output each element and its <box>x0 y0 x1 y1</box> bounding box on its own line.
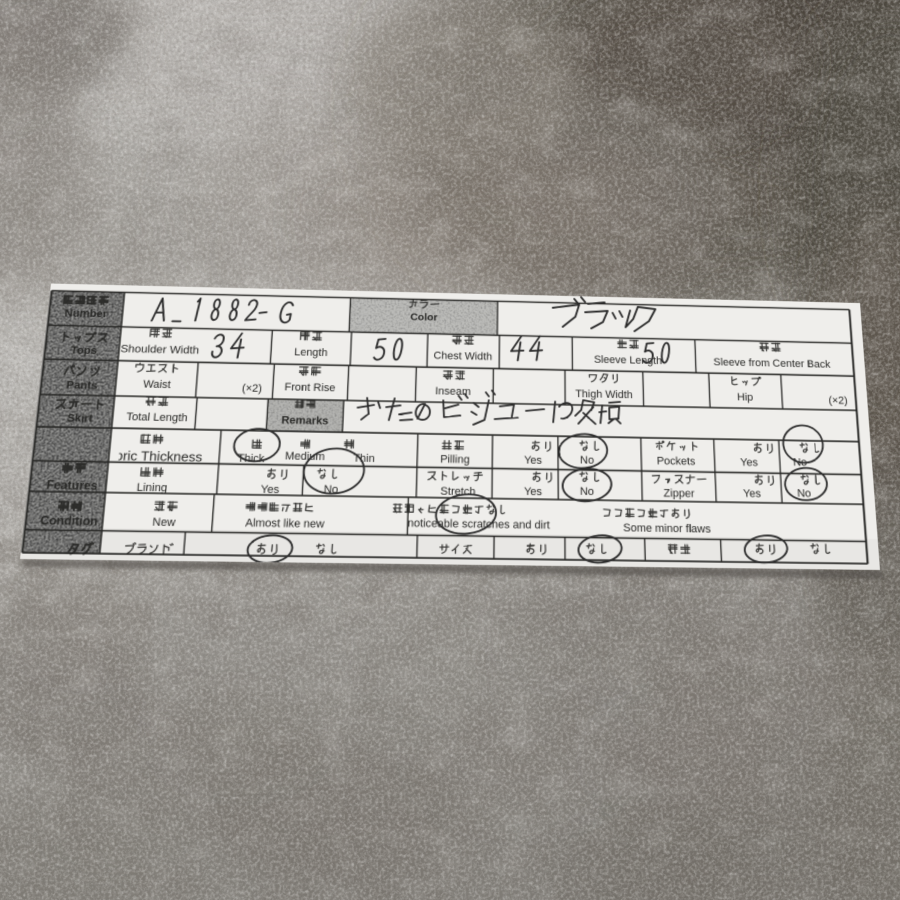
svg-text:Zipper: Zipper <box>663 488 695 500</box>
svg-text:Yes: Yes <box>740 457 758 469</box>
svg-text:Almost like new: Almost like new <box>245 518 325 531</box>
svg-text:Total Length: Total Length <box>126 412 188 425</box>
svg-text:Length: Length <box>294 347 328 359</box>
svg-text:Chest Width: Chest Width <box>433 351 492 363</box>
svg-text:New: New <box>152 517 177 529</box>
svg-text:Color: Color <box>410 312 438 323</box>
svg-text:(×2): (×2) <box>242 383 263 395</box>
svg-text:noticeable scratches and dirt: noticeable scratches and dirt <box>407 518 550 532</box>
svg-text:No: No <box>580 486 594 498</box>
svg-text:Yes: Yes <box>524 455 542 467</box>
svg-text:Lining: Lining <box>136 482 168 494</box>
svg-text:Condition: Condition <box>39 515 98 529</box>
svg-text:No: No <box>580 455 594 467</box>
svg-text:Number: Number <box>64 307 108 320</box>
svg-text:Yes: Yes <box>260 484 279 496</box>
svg-text:(×2): (×2) <box>828 395 848 406</box>
svg-text:Yes: Yes <box>524 486 542 498</box>
svg-text:Pockets: Pockets <box>657 456 696 468</box>
svg-text:Waist: Waist <box>143 379 172 391</box>
svg-text:Pants: Pants <box>66 379 99 392</box>
svg-text:Thick: Thick <box>237 453 265 465</box>
svg-text:Thigh Width: Thigh Width <box>575 389 633 401</box>
svg-text:Features: Features <box>46 479 98 493</box>
svg-text:Pilling: Pilling <box>440 454 470 466</box>
svg-text:Front Rise: Front Rise <box>284 382 336 394</box>
svg-text:Some minor flaws: Some minor flaws <box>623 523 711 536</box>
svg-text:Stretch: Stretch <box>440 486 476 498</box>
svg-text:Remarks: Remarks <box>281 415 329 427</box>
svg-text:Shoulder Width: Shoulder Width <box>120 343 200 357</box>
svg-text:Tops: Tops <box>70 344 98 357</box>
svg-text:Yes: Yes <box>743 488 761 500</box>
svg-text:Hip: Hip <box>737 392 754 403</box>
svg-text:Skirt: Skirt <box>66 412 93 425</box>
